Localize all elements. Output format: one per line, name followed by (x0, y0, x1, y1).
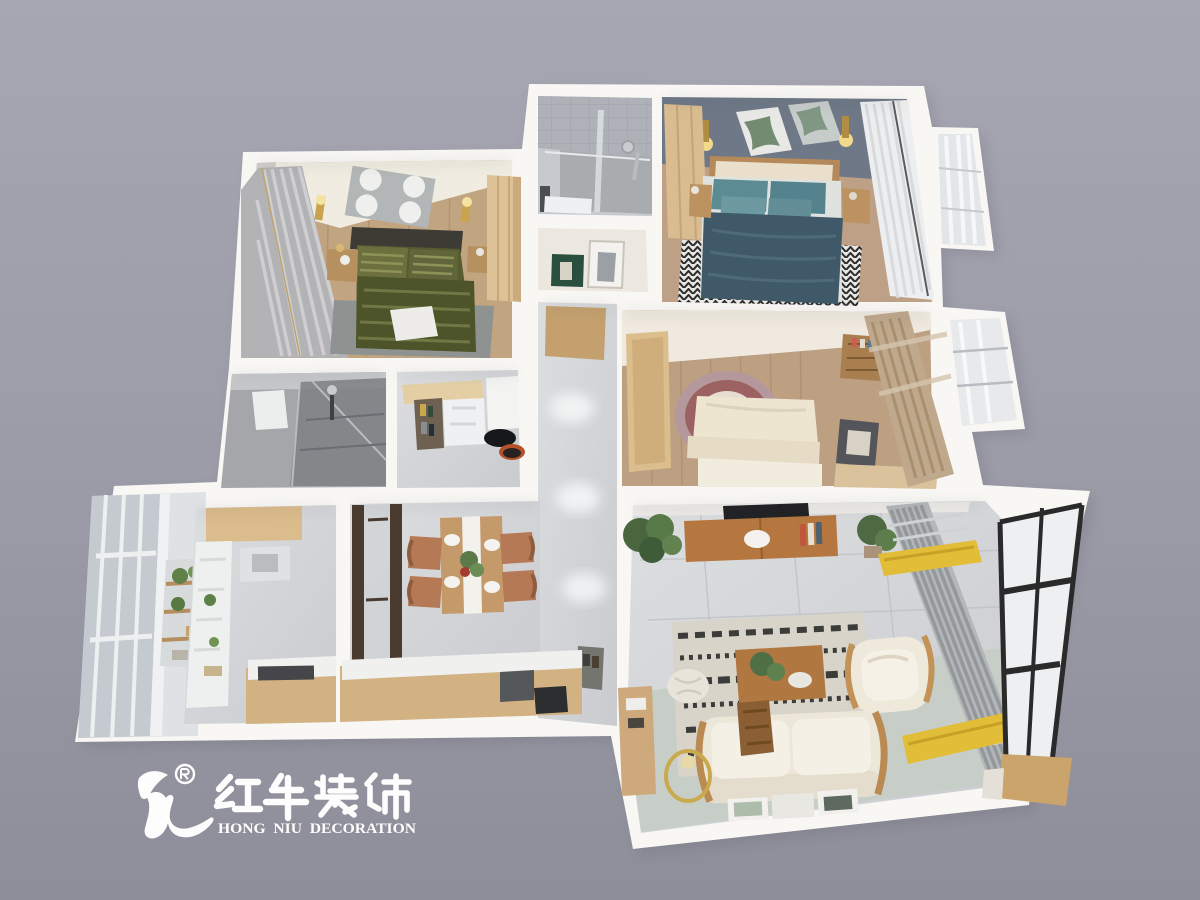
svg-text:HONG NIU DECORATION: HONG NIU DECORATION (218, 821, 416, 837)
